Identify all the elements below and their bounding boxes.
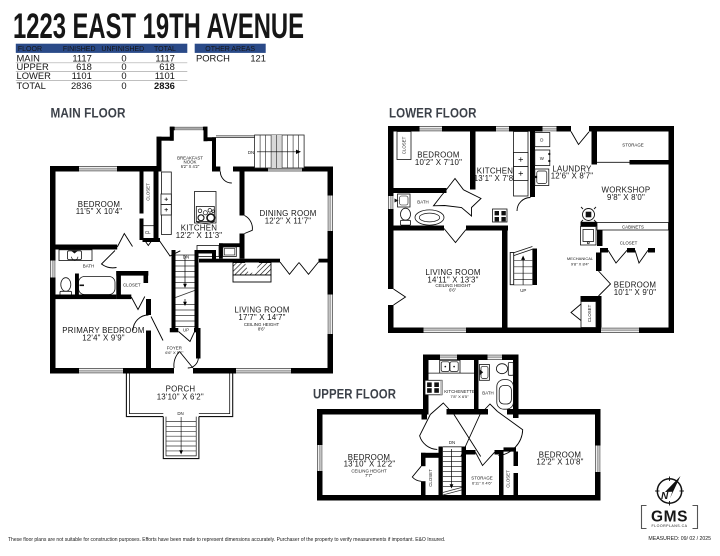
svg-text:6'6": 6'6"	[449, 287, 457, 292]
svg-text:PORCH: PORCH	[196, 52, 230, 63]
svg-text:CABINETS: CABINETS	[622, 225, 644, 230]
svg-text:UP: UP	[520, 288, 526, 293]
svg-text:1223 EAST 19TH AVENUE: 1223 EAST 19TH AVENUE	[13, 7, 304, 46]
svg-text:12'2" X 10'8": 12'2" X 10'8"	[536, 458, 583, 467]
svg-text:10'2" X 7'10": 10'2" X 7'10"	[415, 158, 462, 167]
svg-text:6'11" X 4'6": 6'11" X 4'6"	[472, 480, 493, 485]
svg-text:12'2" X 11'7": 12'2" X 11'7"	[265, 216, 312, 225]
svg-text:N: N	[661, 491, 669, 502]
svg-text:MEASURED: 09/ 02 / 2025: MEASURED: 09/ 02 / 2025	[648, 536, 711, 542]
svg-text:FLOORPLANS.CA: FLOORPLANS.CA	[651, 524, 687, 528]
svg-text:12'4" X 9'9": 12'4" X 9'9"	[82, 333, 125, 342]
svg-text:DN: DN	[183, 254, 189, 259]
svg-text:GMS: GMS	[651, 509, 688, 526]
svg-text:6'6" X 5'7": 6'6" X 5'7"	[165, 350, 184, 355]
svg-text:6'2" X 4'2": 6'2" X 4'2"	[181, 164, 200, 169]
svg-text:CLOSET: CLOSET	[620, 241, 638, 246]
svg-text:STORAGE: STORAGE	[622, 142, 643, 147]
svg-text:9'8" X 8'4": 9'8" X 8'4"	[571, 261, 590, 266]
svg-text:BATH: BATH	[417, 200, 428, 205]
svg-text:13'1" X 7'8": 13'1" X 7'8"	[474, 174, 517, 183]
svg-text:CLOSET: CLOSET	[402, 136, 407, 154]
svg-text:121: 121	[250, 52, 266, 63]
svg-text:10'1" X 9'0": 10'1" X 9'0"	[614, 288, 657, 297]
svg-text:9'8" X 8'0": 9'8" X 8'0"	[607, 193, 645, 202]
svg-text:MAIN FLOOR: MAIN FLOOR	[51, 105, 126, 121]
svg-text:2836: 2836	[154, 80, 175, 91]
svg-text:7'7": 7'7"	[365, 473, 373, 478]
svg-text:CLOSET: CLOSET	[506, 470, 511, 488]
svg-text:TOTAL: TOTAL	[17, 80, 46, 91]
svg-text:17'7" X 14'7": 17'7" X 14'7"	[238, 313, 285, 322]
svg-text:CLOSET: CLOSET	[145, 183, 150, 201]
svg-text:0: 0	[121, 80, 126, 91]
svg-text:7'8" X 6'5": 7'8" X 6'5"	[450, 394, 469, 399]
svg-text:UP: UP	[183, 327, 189, 332]
svg-text:These floor plans are not suit: These floor plans are not suitable for c…	[8, 537, 445, 543]
svg-text:CL: CL	[145, 230, 151, 235]
svg-text:12'2" X 11'3": 12'2" X 11'3"	[176, 231, 223, 240]
svg-text:BATH: BATH	[83, 264, 94, 269]
svg-text:CLOSET: CLOSET	[428, 469, 433, 487]
svg-text:DN: DN	[177, 411, 183, 416]
svg-text:CLOSET: CLOSET	[123, 282, 141, 287]
svg-text:2836: 2836	[71, 80, 92, 91]
svg-text:13'10" X 12'2": 13'10" X 12'2"	[344, 460, 396, 469]
svg-text:8'6": 8'6"	[258, 326, 266, 331]
svg-text:DN: DN	[449, 440, 455, 445]
svg-text:UPPER FLOOR: UPPER FLOOR	[313, 387, 396, 403]
svg-text:D: D	[540, 137, 543, 142]
svg-text:11'5" X 10'4": 11'5" X 10'4"	[76, 207, 123, 216]
svg-text:BATH: BATH	[482, 390, 493, 395]
svg-text:13'10" X 6'2": 13'10" X 6'2"	[157, 392, 204, 401]
svg-text:MECHANICAL: MECHANICAL	[567, 256, 594, 261]
svg-text:DN: DN	[248, 150, 254, 155]
svg-text:CLOSET: CLOSET	[587, 304, 592, 322]
svg-text:12'6" X 8'7": 12'6" X 8'7"	[551, 171, 594, 180]
svg-text:LOWER FLOOR: LOWER FLOOR	[389, 105, 477, 121]
